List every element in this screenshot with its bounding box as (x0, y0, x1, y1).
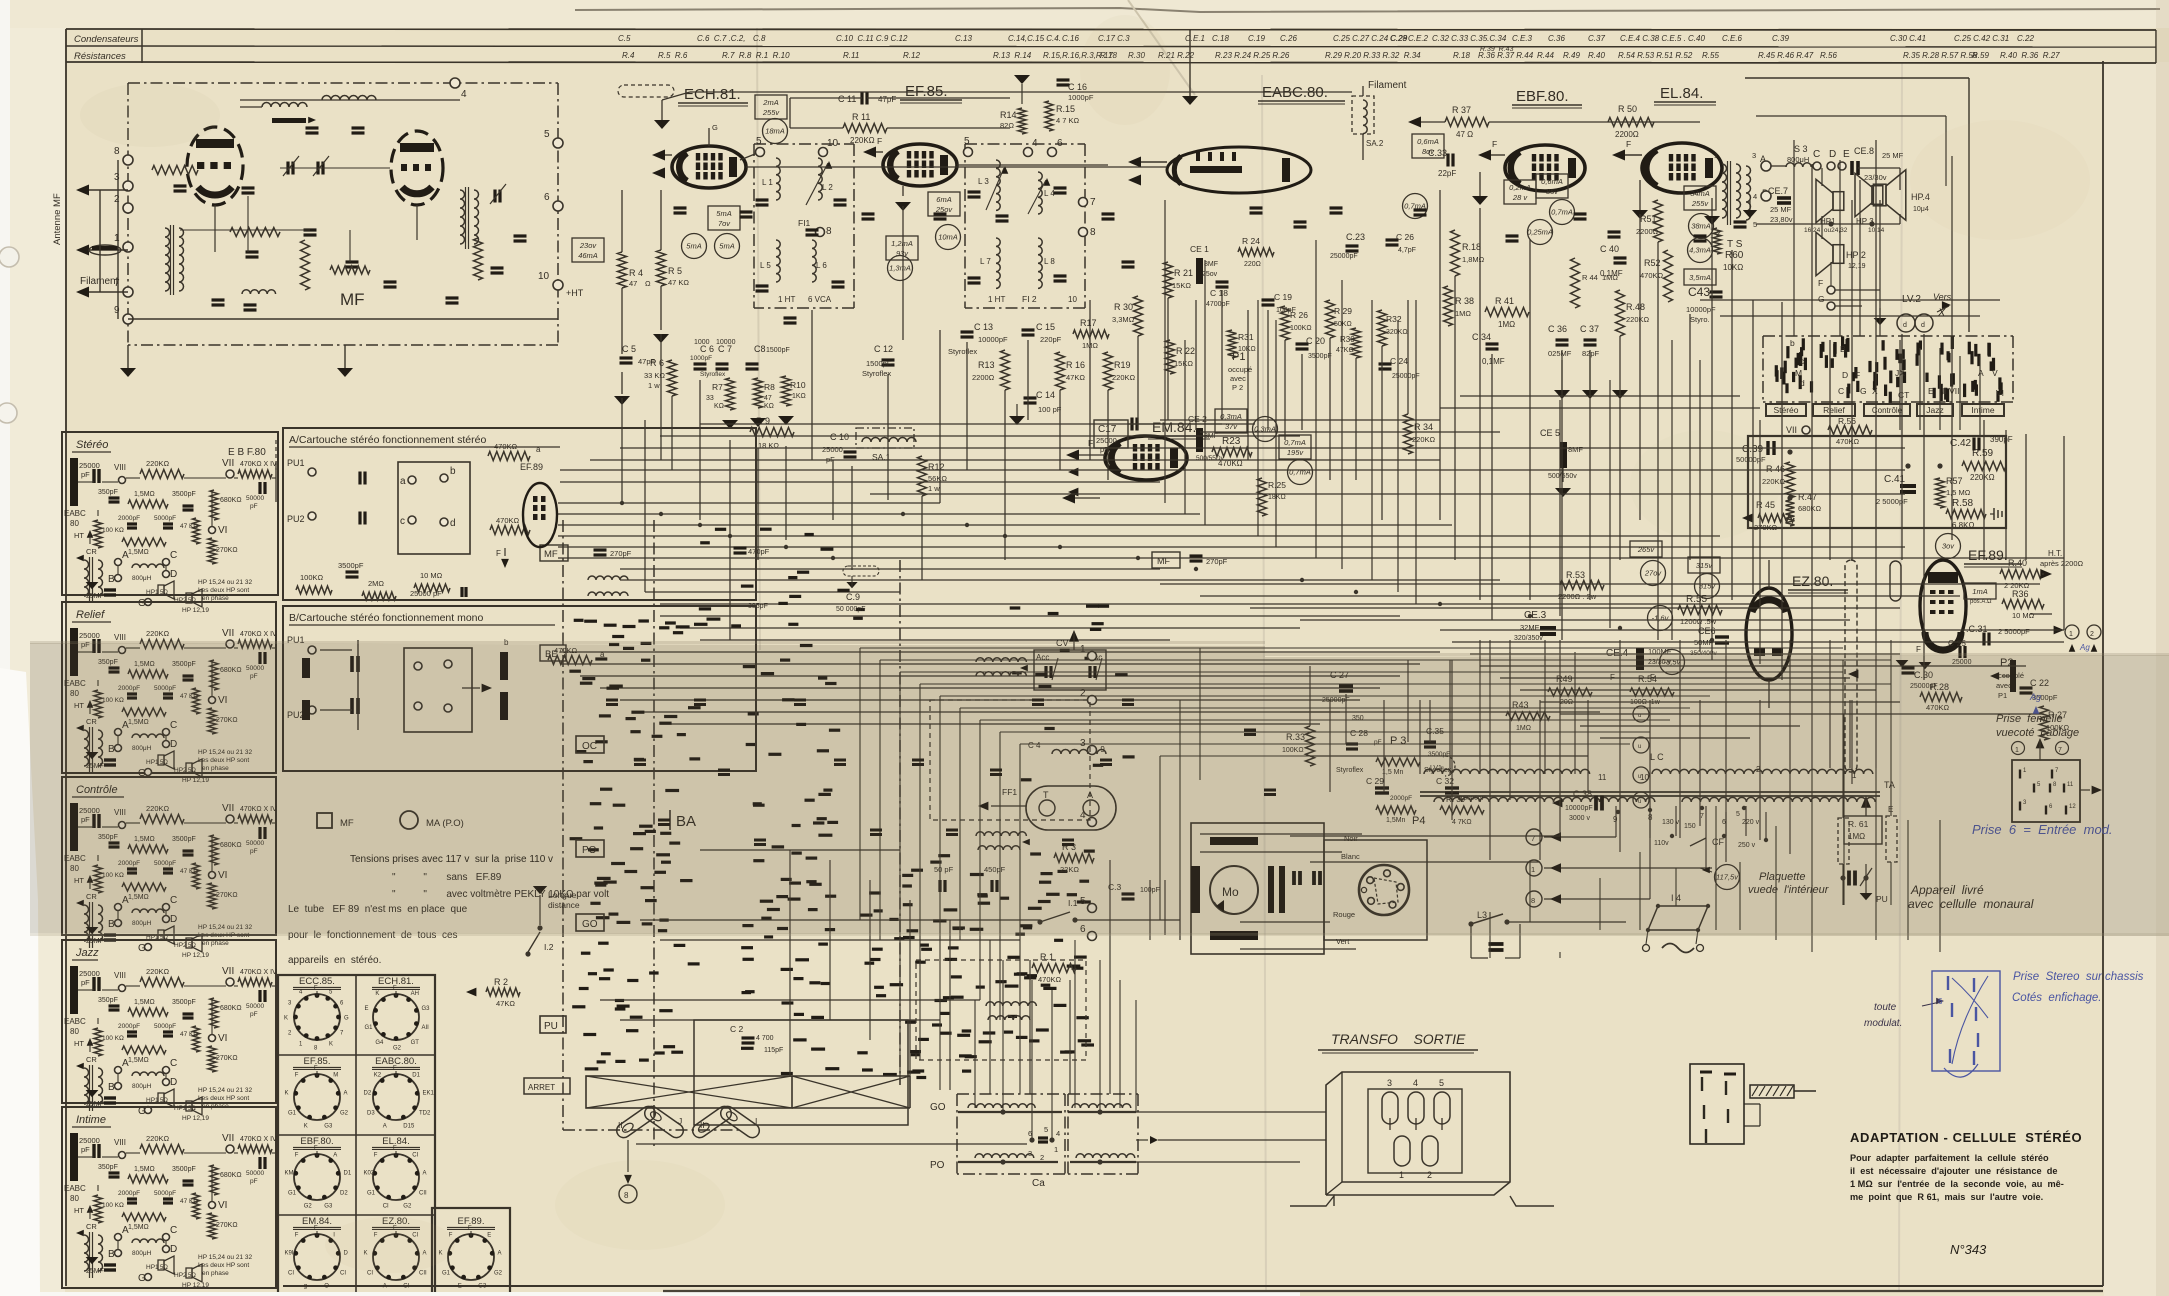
svg-text:K: K (329, 1042, 333, 1048)
svg-text:8: 8 (114, 146, 120, 157)
svg-text:EBF.80.: EBF.80. (1516, 88, 1569, 105)
svg-text:Styroflex: Styroflex (700, 371, 726, 378)
svg-text:C 15: C 15 (1036, 322, 1055, 332)
svg-text:50 000pF: 50 000pF (836, 606, 866, 613)
svg-text:Ca: Ca (1032, 1178, 1045, 1189)
svg-text:4: 4 (1413, 1078, 1418, 1088)
svg-text:KM: KM (285, 1170, 294, 1176)
svg-text:470KΩ: 470KΩ (1640, 271, 1664, 280)
svg-text:R 37: R 37 (1452, 105, 1471, 115)
svg-text:D1: D1 (344, 1170, 352, 1176)
svg-text:G1: G1 (365, 1025, 374, 1031)
svg-text:220Ω: 220Ω (1244, 261, 1261, 268)
svg-text:AH: AH (411, 991, 419, 997)
svg-text:28 v: 28 v (1512, 193, 1528, 202)
svg-text:6: 6 (1057, 138, 1063, 149)
svg-text:KΩ: KΩ (714, 403, 724, 410)
svg-text:G3: G3 (324, 1124, 333, 1130)
svg-text:R.15: R.15 (1056, 104, 1075, 114)
svg-text:SA.2: SA.2 (1366, 139, 1384, 148)
svg-text:Jazz: Jazz (1926, 405, 1943, 415)
svg-text:5000pF: 5000pF (154, 1190, 176, 1197)
svg-text:800μH: 800μH (132, 1250, 152, 1257)
svg-text:EL.84.: EL.84. (1660, 85, 1703, 102)
svg-text:1500pF: 1500pF (766, 347, 790, 354)
svg-text:6 8KΩ: 6 8KΩ (1952, 521, 1974, 530)
svg-text:3: 3 (1028, 1149, 1032, 1158)
svg-text:R.23 R.24 R.25 R.26: R.23 R.24 R.25 R.26 (1215, 51, 1290, 60)
svg-text:25000: 25000 (1096, 436, 1117, 445)
svg-text:B: B (108, 574, 115, 585)
svg-text:CI: CI (403, 1284, 409, 1290)
svg-text:2: 2 (114, 194, 120, 205)
svg-text:R.40: R.40 (1588, 51, 1605, 60)
svg-text:TRANSFO SORTIE: TRANSFO SORTIE (1331, 1031, 1466, 1047)
svg-text:CI: CI (340, 1271, 346, 1277)
svg-text:4 700: 4 700 (756, 1035, 774, 1042)
svg-text:C: C (1838, 386, 1844, 396)
svg-text:C.26: C.26 (1280, 34, 1297, 43)
svg-text:1000pF: 1000pF (690, 355, 712, 362)
svg-text:CE.7: CE.7 (1768, 186, 1788, 196)
svg-text:G4: G4 (375, 1040, 384, 1046)
svg-text:c: c (400, 516, 405, 527)
svg-text:F: F (374, 1153, 378, 1159)
svg-text:R 50: R 50 (1618, 104, 1637, 114)
svg-text:350pF: 350pF (98, 1164, 118, 1171)
svg-text:B: B (108, 1249, 115, 1260)
svg-text:2: 2 (1427, 1170, 1432, 1180)
svg-text:E: E (487, 1233, 491, 1239)
svg-text:L 7: L 7 (980, 257, 991, 266)
svg-text:1KΩ: 1KΩ (792, 393, 806, 400)
svg-text:G2: G2 (494, 1271, 503, 1277)
svg-text:HP1: HP1 (146, 1097, 159, 1104)
svg-text:R 21: R 21 (1174, 268, 1193, 278)
svg-text:EF.89.: EF.89. (1968, 547, 2008, 563)
svg-text:1MΩ: 1MΩ (1455, 309, 1471, 318)
svg-text:F: F (295, 1233, 299, 1239)
svg-text:F: F (393, 1146, 397, 1152)
svg-text:A: A (1978, 368, 1984, 378)
svg-text:G1: G1 (288, 1191, 297, 1197)
svg-text:2200Ω: 2200Ω (1615, 130, 1639, 139)
svg-text:A: A (423, 1170, 427, 1176)
svg-text:VIII: VIII (114, 633, 126, 642)
svg-text:10 MΩ: 10 MΩ (420, 571, 443, 580)
svg-text:A: A (333, 1153, 337, 1159)
svg-text:1500pF: 1500pF (866, 359, 892, 368)
svg-text:32MF: 32MF (1520, 623, 1540, 632)
svg-text:E: E (1843, 149, 1850, 160)
svg-text:Relief: Relief (1823, 405, 1845, 415)
svg-text:80: 80 (70, 519, 79, 528)
svg-text:CE 5: CE 5 (1540, 428, 1560, 438)
svg-text:HP 12,19: HP 12,19 (182, 952, 209, 959)
svg-text:470KΩ: 470KΩ (496, 516, 520, 525)
svg-text:220KΩ: 220KΩ (1970, 473, 1995, 482)
svg-text:A: A (498, 1250, 502, 1256)
svg-text:HP2: HP2 (174, 942, 187, 949)
svg-text:C.28: C.28 (1390, 34, 1407, 43)
svg-text:680KΩ: 680KΩ (1798, 504, 1822, 513)
svg-text:Condensateurs: Condensateurs (74, 34, 139, 45)
svg-text:3: 3 (1752, 151, 1756, 160)
svg-text:25000: 25000 (822, 445, 843, 454)
svg-text:0,7mA: 0,7mA (1551, 208, 1573, 217)
svg-text:C 12: C 12 (874, 344, 893, 354)
svg-text:470pF: 470pF (748, 547, 770, 556)
svg-text:H.T.: H.T. (2048, 549, 2062, 558)
svg-text:C.E.6: C.E.6 (1722, 34, 1743, 43)
svg-text:ARRET: ARRET (528, 1083, 555, 1092)
svg-text:6mA: 6mA (936, 195, 951, 204)
svg-text:PU1: PU1 (287, 458, 305, 468)
svg-text:F: F (314, 1146, 318, 1152)
svg-text:VI: VI (218, 525, 227, 536)
svg-text:d: d (450, 518, 456, 529)
svg-text:en phase: en phase (202, 1270, 229, 1277)
svg-text:5mA: 5mA (686, 242, 701, 251)
svg-text:3500pF: 3500pF (172, 999, 196, 1006)
svg-text:C.18: C.18 (1212, 34, 1229, 43)
svg-text:R13: R13 (978, 360, 995, 370)
svg-text:D2: D2 (364, 1090, 372, 1096)
svg-text:3,5mA: 3,5mA (1689, 273, 1711, 282)
svg-text:50000: 50000 (246, 1003, 264, 1010)
svg-text:C.10 C.11 C.9 C.12: C.10 C.11 C.9 C.12 (836, 34, 908, 43)
svg-text:A: A (122, 550, 129, 561)
svg-text:G3: G3 (422, 1006, 431, 1012)
svg-text:HP 12,19: HP 12,19 (182, 1282, 209, 1289)
svg-text:25000: 25000 (79, 461, 100, 470)
svg-text:80: 80 (70, 1194, 79, 1203)
svg-text:A: A (383, 1284, 387, 1290)
svg-text:K: K (284, 1016, 288, 1022)
svg-text:VIII: VIII (114, 971, 126, 980)
svg-text:7ov: 7ov (718, 219, 731, 228)
svg-text:pF: pF (250, 1178, 258, 1185)
svg-text:10: 10 (827, 138, 839, 149)
svg-text:R 26: R 26 (1290, 310, 1308, 320)
svg-text:b: b (1790, 338, 1795, 348)
svg-text:320/350v: 320/350v (1514, 635, 1543, 642)
svg-text:33 KΩ: 33 KΩ (644, 371, 665, 380)
svg-text:F: F (314, 986, 318, 992)
svg-text:CI: CI (383, 1204, 389, 1210)
svg-text:3500pF: 3500pF (172, 1166, 196, 1173)
svg-text:ECH.81.: ECH.81. (684, 86, 741, 103)
svg-text:C.42: C.42 (1950, 438, 1972, 449)
svg-text:VI: VI (1996, 388, 2004, 398)
svg-text:pF: pF (81, 978, 90, 987)
svg-text:HP 2: HP 2 (1846, 250, 1866, 260)
svg-text:d: d (1800, 378, 1805, 388)
svg-text:HT: HT (74, 1206, 84, 1215)
svg-text:5mA: 5mA (719, 242, 734, 251)
svg-text:R.5 R.6: R.5 R.6 (658, 51, 688, 60)
svg-text:B: B (108, 1082, 115, 1093)
svg-text:D3: D3 (367, 1111, 375, 1117)
svg-text:VII: VII (222, 966, 234, 977)
svg-text:R.7 R.8 R.1 R.10: R.7 R.8 R.1 R.10 (722, 51, 790, 60)
svg-text:R 34: R 34 (1414, 422, 1433, 432)
svg-text:toute: toute (1874, 1002, 1897, 1013)
svg-text:025MF: 025MF (1548, 349, 1572, 358)
svg-text:1 HT: 1 HT (778, 295, 795, 304)
svg-text:47: 47 (764, 395, 772, 402)
svg-text:3500pF: 3500pF (1308, 353, 1332, 360)
svg-text:F: F (314, 1066, 318, 1072)
svg-text:L 5: L 5 (760, 261, 771, 270)
svg-text:-1,6v: -1,6v (1652, 614, 1670, 623)
svg-text:R.56: R.56 (1820, 51, 1837, 60)
svg-text:P1: P1 (1232, 351, 1245, 363)
svg-text:II: II (618, 1120, 623, 1130)
svg-text:A: A (122, 1058, 129, 1069)
svg-text:470KΩ X IV: 470KΩ X IV (240, 631, 277, 638)
svg-text:38mA: 38mA (1691, 222, 1711, 231)
svg-text:18 KΩ: 18 KΩ (758, 441, 779, 450)
svg-text:25000pF: 25000pF (1330, 253, 1358, 260)
svg-text:V: V (1992, 368, 1998, 378)
svg-text:220pF: 220pF (1040, 335, 1062, 344)
svg-text:R.59: R.59 (1972, 51, 1989, 60)
svg-text:HP 12,19: HP 12,19 (182, 607, 209, 614)
svg-text:C.30 C.41: C.30 C.41 (1890, 34, 1926, 43)
svg-text:C 13: C 13 (974, 322, 993, 332)
svg-text:HP 15,24 ou 21 32: HP 15,24 ou 21 32 (198, 1087, 252, 1094)
svg-text:100 KΩ: 100 KΩ (102, 1202, 124, 1209)
svg-text:R 6: R 6 (650, 358, 664, 368)
svg-text:8MF: 8MF (1568, 445, 1583, 454)
svg-text:C 40: C 40 (1600, 244, 1619, 254)
svg-text:G: G (1860, 386, 1867, 396)
svg-text:R60: R60 (1725, 250, 1744, 261)
svg-text:1MΩ: 1MΩ (1498, 320, 1515, 329)
svg-text:C 18: C 18 (1210, 288, 1228, 298)
svg-text:22pF: 22pF (1438, 169, 1456, 178)
svg-text:I.2: I.2 (544, 942, 554, 952)
svg-text:1 w: 1 w (648, 381, 660, 390)
svg-text:R.48: R.48 (1626, 302, 1645, 312)
svg-text:HP1: HP1 (146, 589, 159, 596)
svg-text:Filament: Filament (1368, 80, 1407, 91)
svg-text:R.18: R.18 (1462, 242, 1481, 252)
svg-text:1,5MΩ: 1,5MΩ (134, 999, 155, 1006)
svg-text:47KΩ: 47KΩ (1336, 347, 1354, 354)
svg-text:F: F (1916, 645, 1921, 654)
svg-text:1: 1 (1054, 1145, 1058, 1154)
svg-text:C.5: C.5 (618, 34, 631, 43)
svg-text:J: J (678, 1116, 682, 1126)
svg-text:G: G (138, 1273, 146, 1284)
svg-text:F: F (295, 1153, 299, 1159)
svg-text:4: 4 (1032, 138, 1038, 149)
svg-text:K: K (285, 1090, 289, 1096)
svg-text:220KΩ: 220KΩ (146, 1134, 170, 1143)
svg-text:R 16: R 16 (1066, 360, 1085, 370)
svg-text:CE.3: CE.3 (1524, 610, 1547, 621)
svg-text:R.11: R.11 (843, 51, 859, 60)
svg-text:X: X (1937, 307, 1946, 319)
svg-text:il est nécessaire d'ajouter: il est nécessaire d'ajouter une résistan… (1850, 1166, 2057, 1176)
svg-text:EABC: EABC (64, 1184, 86, 1193)
svg-text:C 34: C 34 (1472, 332, 1491, 342)
svg-text:4: 4 (1753, 192, 1757, 201)
svg-text:3500pF: 3500pF (338, 561, 364, 570)
svg-text:0,7mA: 0,7mA (1289, 468, 1311, 477)
svg-text:320KΩ: 320KΩ (1386, 329, 1408, 336)
svg-text:II VII: II VII (1942, 386, 1959, 396)
svg-text:R 41: R 41 (1495, 296, 1514, 306)
svg-text:4,3mA: 4,3mA (1689, 246, 1711, 255)
svg-text:100 KΩ: 100 KΩ (102, 1035, 124, 1042)
svg-text:D: D (170, 1244, 177, 1255)
svg-text:25000: 25000 (79, 1136, 100, 1145)
svg-text:MF: MF (544, 549, 558, 560)
svg-text:HT: HT (74, 1039, 84, 1048)
svg-text:R.12: R.12 (903, 51, 920, 60)
svg-text:1,8MΩ: 1,8MΩ (1462, 255, 1485, 264)
svg-text:F: F (295, 1073, 299, 1079)
svg-text:C.22: C.22 (2017, 34, 2034, 43)
svg-text:PU: PU (544, 1021, 558, 1032)
svg-text:FI 2: FI 2 (1022, 294, 1037, 304)
svg-text:4700pF: 4700pF (1206, 301, 1230, 308)
svg-text:7: 7 (1090, 197, 1096, 208)
svg-text:EABC: EABC (64, 509, 86, 518)
svg-text:R.55: R.55 (1702, 51, 1719, 60)
svg-text:50KΩ: 50KΩ (1334, 321, 1352, 328)
svg-text:15KΩ: 15KΩ (1174, 359, 1193, 368)
svg-text:0,6mA: 0,6mA (1541, 177, 1563, 186)
svg-text:G2: G2 (304, 1204, 313, 1210)
svg-text:1: 1 (1399, 1170, 1404, 1180)
svg-text:R19: R19 (1114, 360, 1131, 370)
svg-text:Stéréo: Stéréo (76, 439, 108, 451)
svg-text:pF: pF (250, 503, 258, 510)
svg-text:G: G (712, 123, 718, 132)
svg-text:A: A (122, 1225, 129, 1236)
svg-text:R.35 R.28 R.57 R.58: R.35 R.28 R.57 R.58 (1903, 51, 1978, 60)
svg-text:G2: G2 (403, 1204, 412, 1210)
svg-text:R.56: R.56 (1838, 416, 1856, 426)
svg-text:47 Ω: 47 Ω (1456, 130, 1473, 139)
svg-text:R.45 R.46 R.47: R.45 R.46 R.47 (1758, 51, 1814, 60)
svg-text:220KΩ: 220KΩ (146, 967, 170, 976)
svg-text:AII: AII (422, 1025, 430, 1031)
svg-text:2000pF: 2000pF (118, 1190, 140, 1197)
svg-text:R 2: R 2 (494, 977, 508, 987)
svg-text:E B F.80: E B F.80 (228, 447, 266, 458)
svg-text:50000: 50000 (246, 495, 264, 502)
svg-text:C 37: C 37 (1580, 324, 1599, 334)
svg-text:220KΩ: 220KΩ (1626, 315, 1650, 324)
svg-text:C43: C43 (1688, 285, 1710, 299)
svg-text:D15: D15 (403, 1124, 415, 1130)
svg-text:1 MΩ sur l'entrée de la s: 1 MΩ sur l'entrée de la seconde voie, au… (1850, 1179, 2064, 1189)
svg-text:R 11: R 11 (852, 112, 870, 122)
svg-text:23ov: 23ov (579, 241, 598, 250)
svg-text:C: C (1813, 149, 1820, 160)
svg-text:4 7 KΩ: 4 7 KΩ (1056, 116, 1080, 125)
svg-text:1: 1 (1714, 151, 1718, 160)
svg-text:800μH: 800μH (132, 575, 152, 582)
svg-text:1000: 1000 (694, 339, 710, 346)
svg-text:10: 10 (538, 271, 550, 282)
svg-text:5Ω: 5Ω (160, 1265, 168, 1271)
svg-text:EF.89: EF.89 (520, 462, 543, 472)
svg-text:L 1: L 1 (762, 178, 773, 187)
svg-text:2: 2 (1040, 1153, 1044, 1162)
svg-text:d: d (1903, 322, 1907, 329)
svg-text:R32: R32 (1386, 314, 1402, 324)
svg-text:R.58: R.58 (1952, 498, 1974, 509)
svg-text:4,7pF: 4,7pF (1398, 247, 1416, 254)
svg-text:D1: D1 (412, 1073, 420, 1079)
svg-text:CII: CII (419, 1271, 427, 1277)
svg-text:R.54 R.53 R.51 R.52: R.54 R.53 R.51 R.52 (1618, 51, 1693, 60)
svg-text:C 5: C 5 (622, 344, 636, 354)
svg-text:1mA: 1mA (1972, 587, 1987, 596)
svg-text:1,5MΩ: 1,5MΩ (128, 1224, 149, 1231)
svg-text:25MF: 25MF (86, 593, 104, 600)
svg-text:C.E.3: C.E.3 (1512, 34, 1533, 43)
svg-text:M: M (333, 1073, 338, 1079)
svg-text:PU2: PU2 (287, 514, 305, 524)
svg-text:25 MF: 25 MF (1882, 151, 1904, 160)
svg-text:2mA: 2mA (762, 98, 778, 107)
svg-text:34mA: 34mA (1690, 189, 1710, 198)
svg-text:Les deux HP sont: Les deux HP sont (198, 587, 249, 594)
svg-text:C: C (170, 1225, 177, 1236)
svg-text:R.25: R.25 (1268, 480, 1286, 490)
svg-text:Antenne MF: Antenne MF (52, 193, 63, 245)
svg-text:F: F (393, 1066, 397, 1072)
svg-text:R.13 R.14: R.13 R.14 (993, 51, 1032, 60)
svg-text:0,6mA: 0,6mA (1417, 137, 1439, 146)
svg-text:5000pF: 5000pF (154, 1023, 176, 1030)
svg-text:1,5 MΩ: 1,5 MΩ (1946, 488, 1971, 497)
svg-text:pos.A.Ω: pos.A.Ω (1970, 599, 1992, 605)
svg-text:Résistances: Résistances (74, 51, 126, 62)
svg-text:pF: pF (81, 470, 90, 479)
svg-text:C.19: C.19 (1248, 34, 1265, 43)
svg-text:L 2: L 2 (822, 183, 833, 192)
svg-text:470KΩ X IV: 470KΩ X IV (240, 969, 277, 976)
svg-text:L 3: L 3 (978, 177, 989, 186)
svg-text:R 29: R 29 (1334, 306, 1352, 316)
svg-text:470KΩ X IV: 470KΩ X IV (240, 1136, 277, 1143)
svg-text:1: 1 (2069, 631, 2073, 638)
svg-text:R 30: R 30 (1114, 302, 1133, 312)
svg-text:K: K (375, 991, 379, 997)
svg-text:800μH: 800μH (132, 1083, 152, 1090)
svg-text:Styroflex: Styroflex (948, 347, 977, 356)
svg-text:CR: CR (86, 1222, 97, 1231)
svg-text:3500pF: 3500pF (172, 491, 196, 498)
svg-text:C.9: C.9 (846, 592, 860, 602)
svg-text:R17: R17 (1080, 318, 1097, 328)
svg-text:1,5MΩ: 1,5MΩ (128, 549, 149, 556)
svg-text:25ov: 25ov (1202, 271, 1218, 278)
svg-text:R31: R31 (1238, 332, 1254, 342)
svg-text:10KΩ: 10KΩ (1723, 263, 1743, 272)
svg-text:1,5MΩ: 1,5MΩ (134, 491, 155, 498)
svg-text:85v: 85v (1546, 187, 1559, 196)
svg-text:M: M (1795, 368, 1802, 378)
